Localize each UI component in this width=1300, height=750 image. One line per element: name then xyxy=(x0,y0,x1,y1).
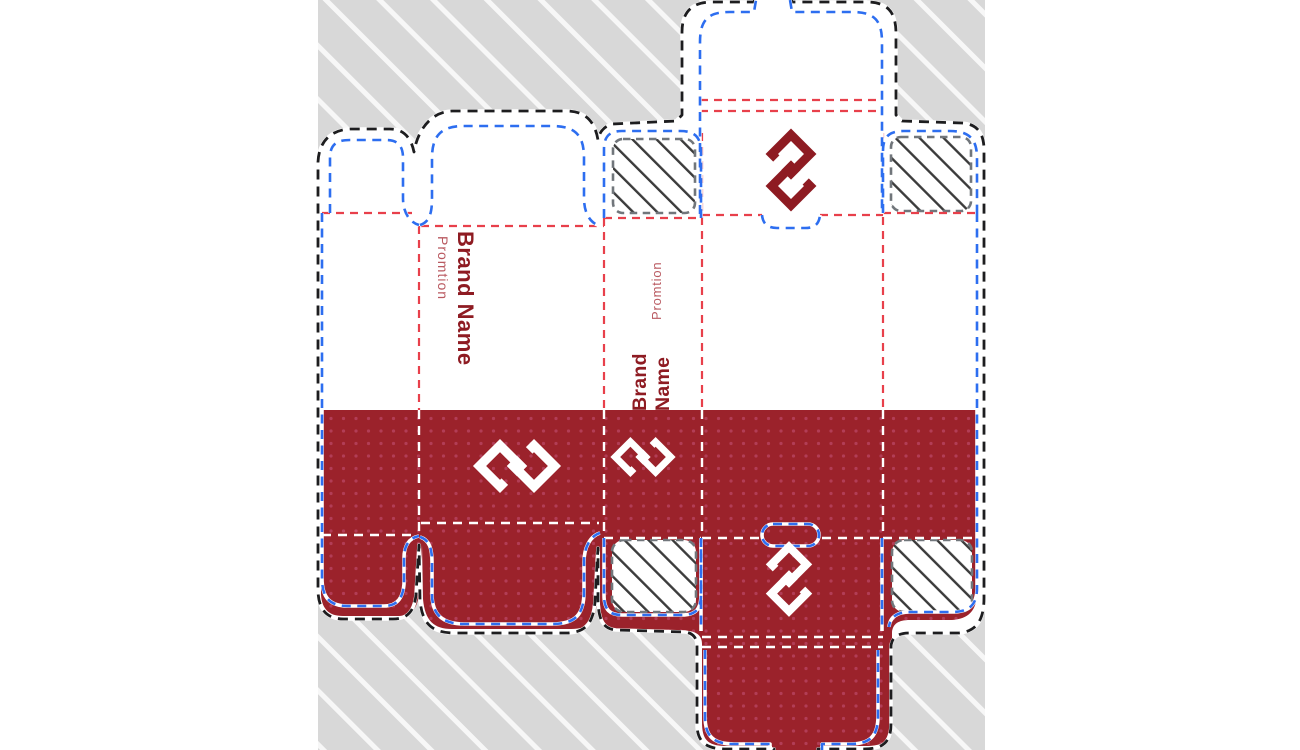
side-brand-word1-text: Brand xyxy=(629,353,651,411)
dieline-svg: Brand Name Promtion Brand Name Promtion xyxy=(0,0,1300,750)
side-promotion-text: Promtion xyxy=(649,262,664,320)
glue-hatch-bottom-left xyxy=(612,540,696,612)
side-brand-word2-text: Name xyxy=(652,357,674,411)
glue-hatch-bottom-right xyxy=(892,540,972,612)
glue-hatch-top-right xyxy=(891,137,971,211)
front-brand-name-text: Brand Name xyxy=(453,231,478,366)
front-promotion-text: Promtion xyxy=(435,236,451,300)
design-canvas: Brand Name Promtion Brand Name Promtion xyxy=(0,0,1300,750)
glue-hatch-top-left xyxy=(613,139,695,213)
